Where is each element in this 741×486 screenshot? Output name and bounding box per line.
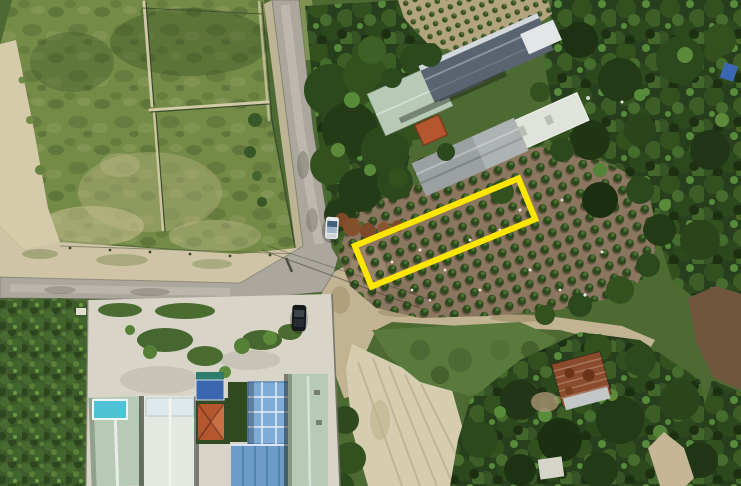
swimming-pool	[93, 400, 127, 419]
windshield	[327, 221, 337, 228]
glass-roof-house	[248, 382, 290, 444]
house-right-mint	[288, 374, 328, 486]
residential-compound	[76, 294, 340, 486]
gate-post	[76, 308, 86, 315]
white-shed	[538, 456, 565, 479]
aerial-photo-canvas	[0, 0, 741, 486]
shrub-field	[0, 298, 96, 486]
grass-field	[0, 0, 296, 254]
orange-pyramid-roof	[198, 404, 224, 440]
house-white-skylight	[144, 396, 196, 486]
blue-container	[196, 372, 224, 400]
aerial-photo	[0, 0, 741, 486]
